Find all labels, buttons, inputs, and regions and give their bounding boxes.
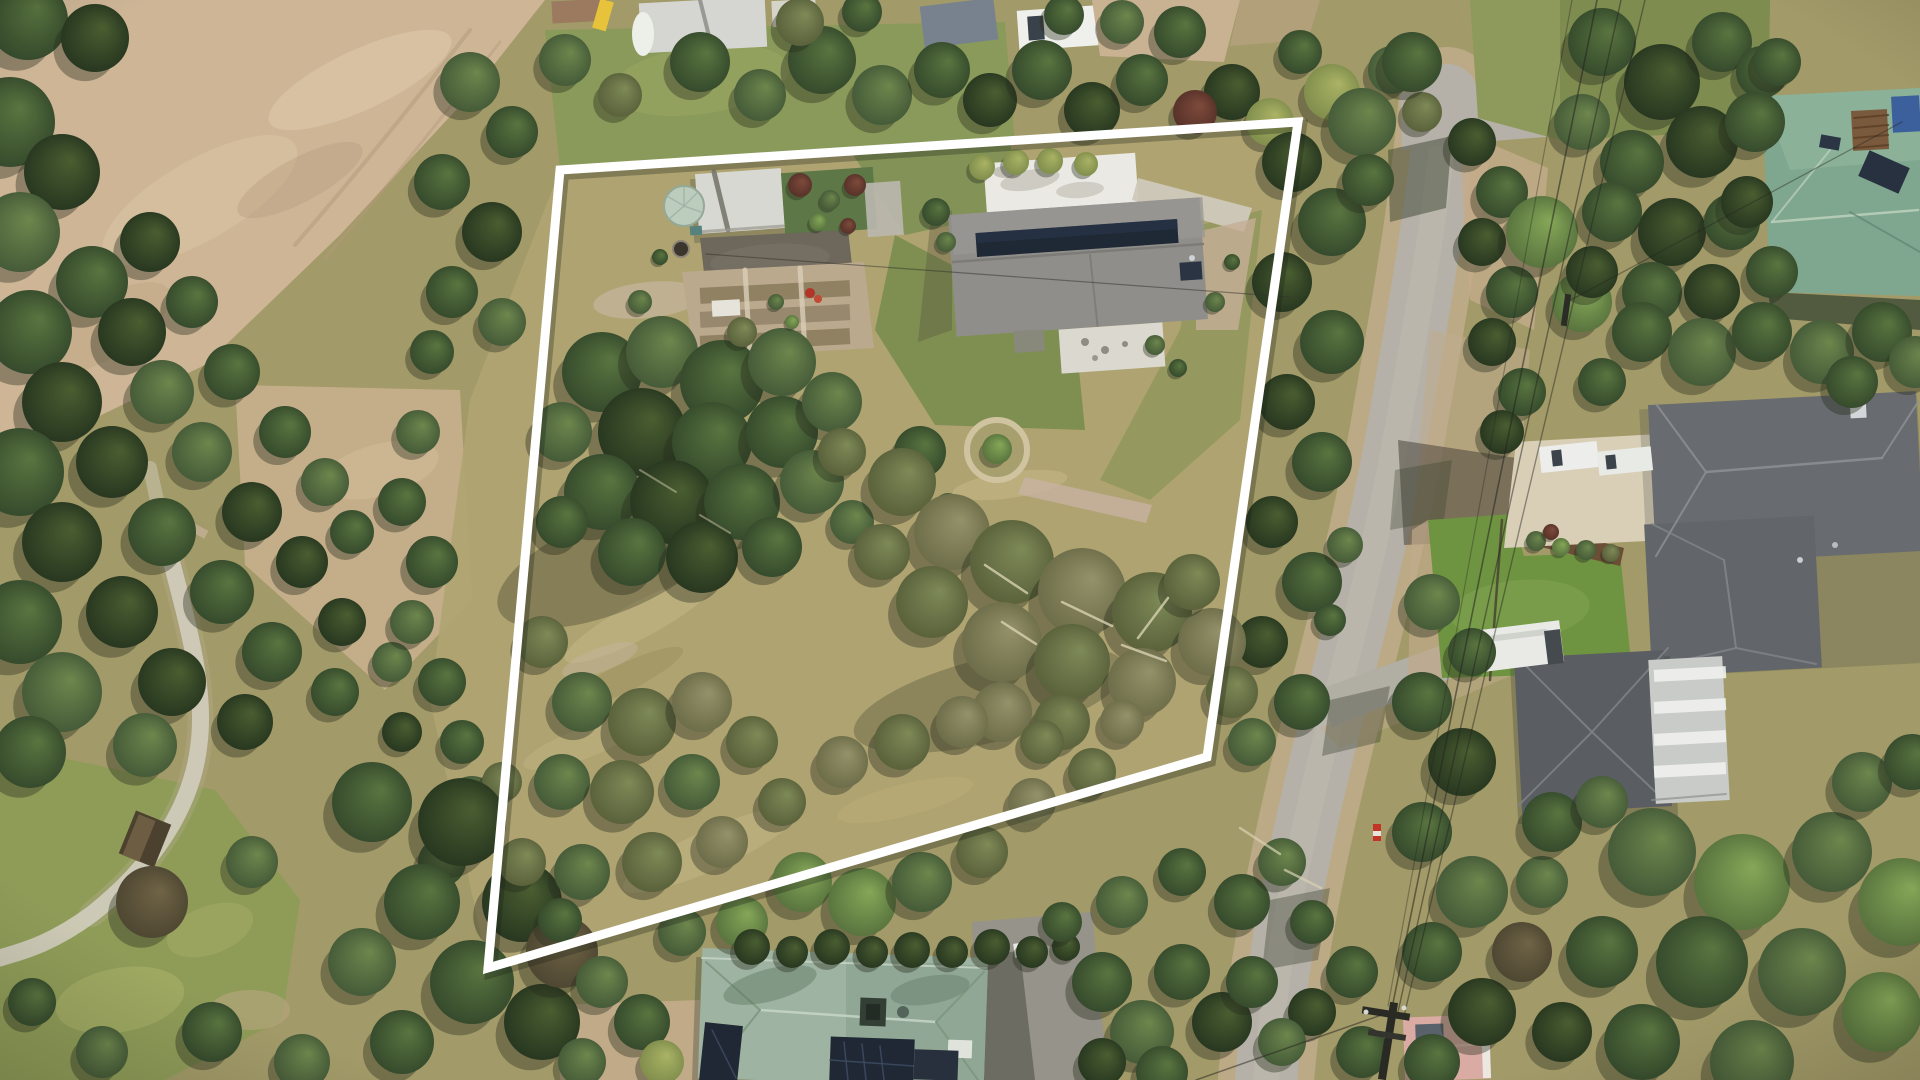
rect-shape [913,1049,958,1080]
tree [892,852,952,912]
tree [1543,524,1559,540]
tree [590,760,654,824]
tree [768,294,784,310]
tree [672,672,732,732]
rect-shape [1551,450,1563,467]
tree [1274,674,1330,730]
tree [788,173,812,197]
tree [378,478,426,526]
tree [554,844,610,900]
tree [598,518,666,586]
tree [726,716,778,768]
tree [1228,718,1276,766]
tree [1758,928,1846,1016]
rect-shape [829,1037,914,1080]
fire-pit [673,241,689,257]
tree [8,978,56,1026]
aerial-photo-canvas [0,0,1920,1080]
tree [727,317,757,347]
tree [370,1010,434,1074]
tree [204,344,260,400]
tree [816,736,868,788]
tree [1158,848,1206,896]
circle-shape [805,288,815,298]
tree [1568,8,1636,76]
tree [222,482,282,542]
tree [1532,1002,1592,1062]
aerial-photo [0,0,1920,1080]
tree [1034,624,1110,700]
tree [1506,196,1578,268]
tree [418,778,506,866]
tree [936,232,956,252]
solar-array [699,1022,743,1080]
tree [1578,358,1626,406]
tree [1566,916,1638,988]
tree [856,936,888,968]
tree [301,458,349,506]
tree [1516,856,1568,908]
tree [330,510,374,554]
solar-heater [1179,261,1202,280]
tree [809,213,827,231]
tree [22,362,102,442]
tree [1404,574,1460,630]
tree [414,154,470,210]
tree [969,154,995,180]
tree [1638,198,1706,266]
tree [1164,554,1220,610]
tree [76,1026,128,1078]
tree [974,929,1010,965]
tree [776,0,824,46]
tree [1382,32,1442,92]
circle-shape [1101,346,1109,354]
tree [396,410,440,454]
shed [695,168,785,234]
tree [172,422,232,482]
tree [748,328,816,396]
circle-shape [1122,341,1128,347]
tree [113,713,177,777]
tree [217,694,273,750]
tree [536,496,588,548]
tree [1100,700,1144,744]
tree [1468,318,1516,366]
tree [652,249,668,265]
tree [1842,972,1920,1052]
tree [1436,856,1508,928]
tree [138,648,206,716]
tree [854,524,910,580]
tree [1684,264,1740,320]
tree [852,65,912,125]
tree [1116,54,1168,106]
tree [734,69,786,121]
tree [86,576,158,648]
tree [628,290,652,314]
tree [670,32,730,92]
tree [61,4,129,72]
tree [130,360,194,424]
tree [802,372,862,432]
tree [1278,30,1322,74]
tree [1566,246,1618,298]
tree [430,940,514,1024]
tree [1602,544,1620,562]
tree [328,928,396,996]
tree [936,936,968,968]
tree [539,34,591,86]
circle-shape [1092,355,1098,361]
tree [1205,292,1225,312]
tree [1576,540,1596,560]
tree [534,754,590,810]
tree [116,866,188,938]
rect-shape [1891,95,1920,132]
tree [418,658,466,706]
tree [190,560,254,624]
rect-shape [1644,516,1822,677]
tree [1326,946,1378,998]
tree [1328,88,1396,156]
tree [1668,318,1736,386]
tree [936,696,988,748]
tree [382,712,422,752]
tree [410,330,454,374]
tree [76,426,148,498]
tree [896,566,968,638]
tree [840,218,856,234]
tree [1725,92,1785,152]
tree [1448,628,1496,676]
tank [632,12,654,56]
tree [1448,118,1496,166]
tree [576,956,628,1008]
tree [874,714,930,770]
tree [1012,40,1072,100]
tree [318,598,366,646]
tree [311,668,359,716]
tree [1480,410,1524,454]
tree [914,42,970,98]
tree [818,428,866,476]
tree [242,622,302,682]
tree [1226,956,1278,1008]
tree [166,276,218,328]
tree [1656,916,1748,1008]
tree [1576,776,1628,828]
circle-shape [814,295,822,303]
tree [1327,527,1363,563]
tree [894,932,930,968]
tree [828,868,896,936]
tree [1003,149,1029,175]
tree [259,406,311,458]
tree [120,212,180,272]
tree [1224,254,1240,270]
tree [1721,176,1773,228]
circle-shape [1189,255,1195,261]
tree [478,298,526,346]
tree [128,498,196,566]
tree [598,73,642,117]
rect-shape [864,181,904,237]
tree [538,898,582,942]
tree [1342,154,1394,206]
tree [1072,952,1132,1012]
tree [1732,302,1792,362]
tree [1608,808,1696,896]
circle-shape [1364,1010,1369,1015]
circle-shape [1832,542,1838,548]
tree [440,52,500,112]
rect-shape [690,226,703,236]
tree [785,315,799,329]
tree [1258,1018,1306,1066]
circle-shape [1081,338,1089,346]
tree [982,434,1012,464]
tree [1042,902,1082,942]
tree [462,202,522,262]
tree [1300,310,1364,374]
tree [1169,359,1187,377]
tree [182,1002,242,1062]
tree [1154,944,1210,1000]
tree [1428,728,1496,796]
tree [1604,1004,1680,1080]
tree [664,754,720,810]
tree [486,106,538,158]
tree [1246,496,1298,548]
tree [742,517,802,577]
tree [226,836,278,888]
tree [1492,922,1552,982]
tree [734,929,770,965]
tree [622,832,682,892]
circle-shape [1797,557,1803,563]
tree [1037,148,1063,174]
tree [1314,604,1346,636]
tree [1145,335,1165,355]
tree [98,298,166,366]
tree [332,762,412,842]
tree [1792,812,1872,892]
tree [1290,900,1334,944]
tree [1292,432,1352,492]
rect-shape [866,1004,881,1020]
tree [276,536,328,588]
tree [814,929,850,965]
tree [758,778,806,826]
tree [1020,720,1064,764]
tree [922,198,950,226]
circle-shape [1402,1006,1407,1011]
tree [1554,94,1610,150]
tree [1746,246,1798,298]
tree [1074,152,1098,176]
rect-shape [1013,329,1044,353]
tree [384,864,460,940]
tree [406,536,458,588]
tree [390,600,434,644]
tree [1552,538,1570,556]
tree [1100,0,1144,44]
circle-shape [897,1006,909,1018]
tree [820,190,840,210]
tree [22,502,102,582]
planter [712,299,741,316]
tree [776,936,808,968]
tree [1826,356,1878,408]
tree [426,266,478,318]
tree [440,720,484,764]
tree [844,174,866,196]
tree [1694,834,1790,930]
tree [1753,38,1801,86]
rect-shape [1373,831,1381,836]
tree [608,688,676,756]
tree [1154,6,1206,58]
tree [696,816,748,868]
rect-shape [1605,455,1616,470]
tree [1096,876,1148,928]
